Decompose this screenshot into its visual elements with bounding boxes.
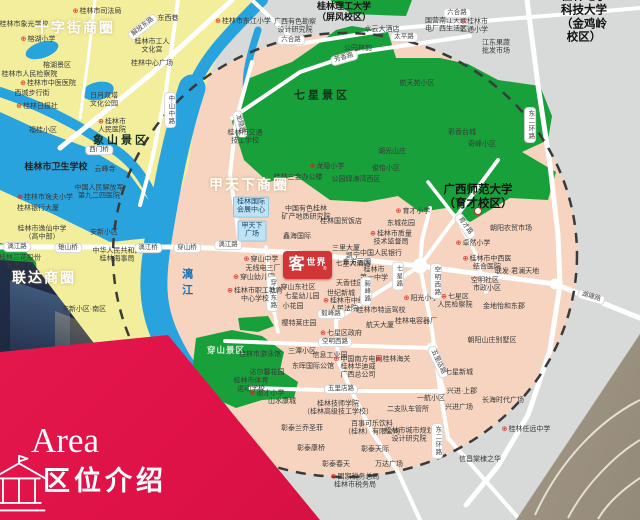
map-label: 朝阳山庄别墅区 — [468, 337, 517, 345]
map-label: 樱特莱庄园 — [282, 320, 317, 328]
map-label: 湖光山庄 — [378, 148, 406, 156]
map-label: 俊怡小区 — [372, 165, 400, 173]
map-label: 达尔馨花园 — [250, 369, 285, 377]
registered-mark-icon: ® — [323, 267, 327, 272]
map-label: 信昌棠棣之华 — [459, 456, 501, 464]
map-label: 二支队车管所 — [387, 406, 429, 414]
map-label: 桂林市中医医院 — [20, 80, 76, 88]
map-label: 桂林市交通 技工学校 — [228, 130, 263, 147]
map-label: 桂林市人民检察院 — [0, 71, 57, 79]
map-label: 兴进·上郡 — [447, 388, 477, 396]
map-label: 空明西路 — [318, 337, 352, 347]
map-label: 卓然小学 — [456, 240, 491, 248]
map-label: 七星区政府 — [320, 330, 362, 338]
map-label: 桂林市游泳馆 — [239, 351, 281, 359]
map-label: 解放东路 — [127, 13, 160, 42]
map-label: 五里店路 — [324, 384, 358, 394]
map-label: 云峰寺 — [95, 166, 116, 174]
project-logo: 客 世界 ® — [283, 251, 332, 279]
map-label: 七星路 — [392, 262, 404, 291]
map-label: 桂林市职工教育 中心学校 — [227, 288, 283, 305]
map-label: 一航小区 — [417, 395, 445, 403]
map-label: 毅峰路 — [317, 309, 345, 319]
map-label: 联发·君澜天地 — [495, 268, 539, 276]
map-label: 雉山桥 — [54, 243, 82, 253]
map-label: 中山中路 — [164, 92, 176, 128]
map-label: 东西巷 — [158, 15, 179, 23]
map-label: 六合路 — [277, 35, 305, 45]
map-label: 桂林市特运驾校 — [357, 307, 406, 315]
map-label: 桂林日报社 — [16, 103, 58, 111]
map-label: 东二环路 — [431, 423, 443, 459]
map-label: 福桂小区 — [29, 127, 57, 135]
map-label: 彰泰康桥 — [297, 445, 325, 453]
map-label: 江东果蔬 批发市场 — [482, 40, 510, 57]
map-label: 桂林海关 — [376, 356, 411, 364]
map-label: 西门桥 — [85, 145, 113, 155]
map-label: 七星新城 — [445, 369, 473, 377]
map-label: 甲天下商圈 — [209, 177, 289, 194]
map-label: 东城花园 — [387, 220, 415, 228]
map-label: 漓江桥 — [134, 243, 162, 253]
map-label: 桂林理工大学 （屏风校区） — [317, 1, 371, 23]
banner-title-en: Area — [31, 421, 99, 461]
map-label: 桂林电子科技大学 （金鸡岭校区） — [556, 0, 612, 46]
map-label: 无线电三厂 — [246, 265, 281, 273]
map-label: 航天苑小区 — [400, 80, 435, 88]
map-label: 毅峰路 — [360, 277, 372, 306]
map-label: 奇峰小区 — [468, 141, 496, 149]
map-label: 芳香路 — [329, 50, 358, 67]
map-label: 联达商圈 — [12, 270, 76, 287]
map-label: 公园绿涛湾西区 — [332, 176, 381, 184]
map-label: 桂林市工人 文化宫 — [135, 39, 170, 56]
map-label: 中国人民银行 — [360, 250, 402, 258]
map-label: 桂林中心广场 — [131, 60, 173, 68]
map-label: 榕湖景区 — [43, 62, 71, 70]
map-label: 桂林市卫生学校 — [24, 162, 87, 173]
map-label: 桂林国贸饭店 — [320, 218, 362, 226]
map-label: 金地怡和东郡 — [483, 303, 525, 311]
map-label: 安新小区 — [90, 229, 118, 237]
map-label: 中国人民解放军 第九二四医院 — [75, 185, 124, 202]
map-label: 漓江 — [179, 268, 192, 300]
map-label: 桂林市逸夫小学 — [17, 194, 73, 202]
map-label: 育才路 — [453, 212, 477, 240]
map-label: 东二环路 — [524, 107, 536, 143]
map-label: 桂林技师学院 （桂林高级技工学校） — [303, 401, 373, 418]
map-label: 日月双塔 文化公园 — [90, 93, 118, 110]
map-label: 桂林国际 会展中心 — [233, 197, 269, 218]
map-label: 万达广场 — [375, 461, 403, 469]
map-label: 漓江路 — [214, 240, 242, 250]
map-label: 七星景区 — [294, 89, 350, 102]
map-label: 桂林银行大厦 — [17, 205, 59, 213]
map-label: 桂林市质量 技术监督局 — [370, 231, 412, 248]
map-label: 桂林华迪威 广西总公司 — [341, 364, 376, 381]
map-label: 龙隐小学 — [310, 163, 345, 171]
map-label: 桂林市司法局 — [73, 8, 122, 16]
map-label: 太平路 — [390, 32, 418, 42]
map-label: 六合路 — [443, 8, 471, 18]
map-label: 鑫海国际 — [283, 233, 311, 241]
map-label: 榕湖小学 — [21, 36, 56, 44]
map-label: 山水康城 — [268, 398, 296, 406]
map-label — [474, 207, 482, 215]
map-label: 国家税务总局 桂林市税务局 — [331, 474, 380, 491]
map-label: 西城步行街 — [15, 90, 50, 98]
map-label: 桂林电容器厂 — [395, 318, 437, 326]
map-label: 湖塘路 — [576, 289, 605, 306]
map-label: 穿山中学 — [244, 256, 279, 264]
map-label: 桂林市东江小学 — [215, 18, 271, 26]
map-label: 朝阳农贸市场 — [490, 225, 532, 233]
map-label: 桂林市 汇通小学 — [460, 19, 488, 36]
map-label: 十字街商圈 — [35, 20, 115, 37]
map-label: 育才小学 — [396, 208, 431, 216]
location-map-page: 桂林市司法局桂林市象光学校十字街商圈解放东路东西巷榕湖小学桂林市工人 文化宫桂林… — [0, 0, 640, 520]
map-label: 彰泰春天 — [322, 461, 350, 469]
map-label: 七星幼儿园 — [285, 293, 320, 301]
map-label: 漓江路 — [3, 242, 31, 252]
map-label: 安新小区·南区 — [62, 306, 106, 314]
pavilion-icon — [0, 452, 48, 518]
map-label: 彩香台城 — [448, 129, 476, 137]
map-label: 彰泰兰乔圣菲 — [281, 425, 323, 433]
banner-title-zh: 区位介绍 — [43, 459, 167, 498]
map-label: 长海时代广场 — [482, 397, 524, 405]
map-label: 市政小区 — [473, 285, 501, 293]
map-label: 三里大厦 — [332, 245, 360, 253]
map-label: 七星区 人民检察院 — [438, 294, 473, 311]
map-label: 桂林市城市规划 设计研究院 — [385, 428, 434, 445]
map-label: 桂林市 人民医院 — [98, 119, 126, 136]
map-label: 彰泰天际 — [361, 446, 389, 454]
map-label: 穿山东社区 — [281, 284, 316, 292]
map-label: 桂林任远中学 — [502, 426, 551, 434]
logo-big-char: 客 — [288, 257, 304, 273]
map-label: 广西有色勘察 设计研究院 — [274, 19, 316, 36]
map-label: 穿山桥 — [173, 243, 201, 253]
map-label: 小花园 — [283, 303, 304, 311]
map-label: 航天大厦 — [366, 322, 394, 330]
map-label: 甲天下 广场 — [238, 221, 267, 242]
map-label: 桂林市逸仙中学 （高中部） — [18, 226, 67, 243]
map-label: 东晖国际公馆 — [292, 363, 334, 371]
map-label: 兴进广场 — [445, 404, 473, 412]
